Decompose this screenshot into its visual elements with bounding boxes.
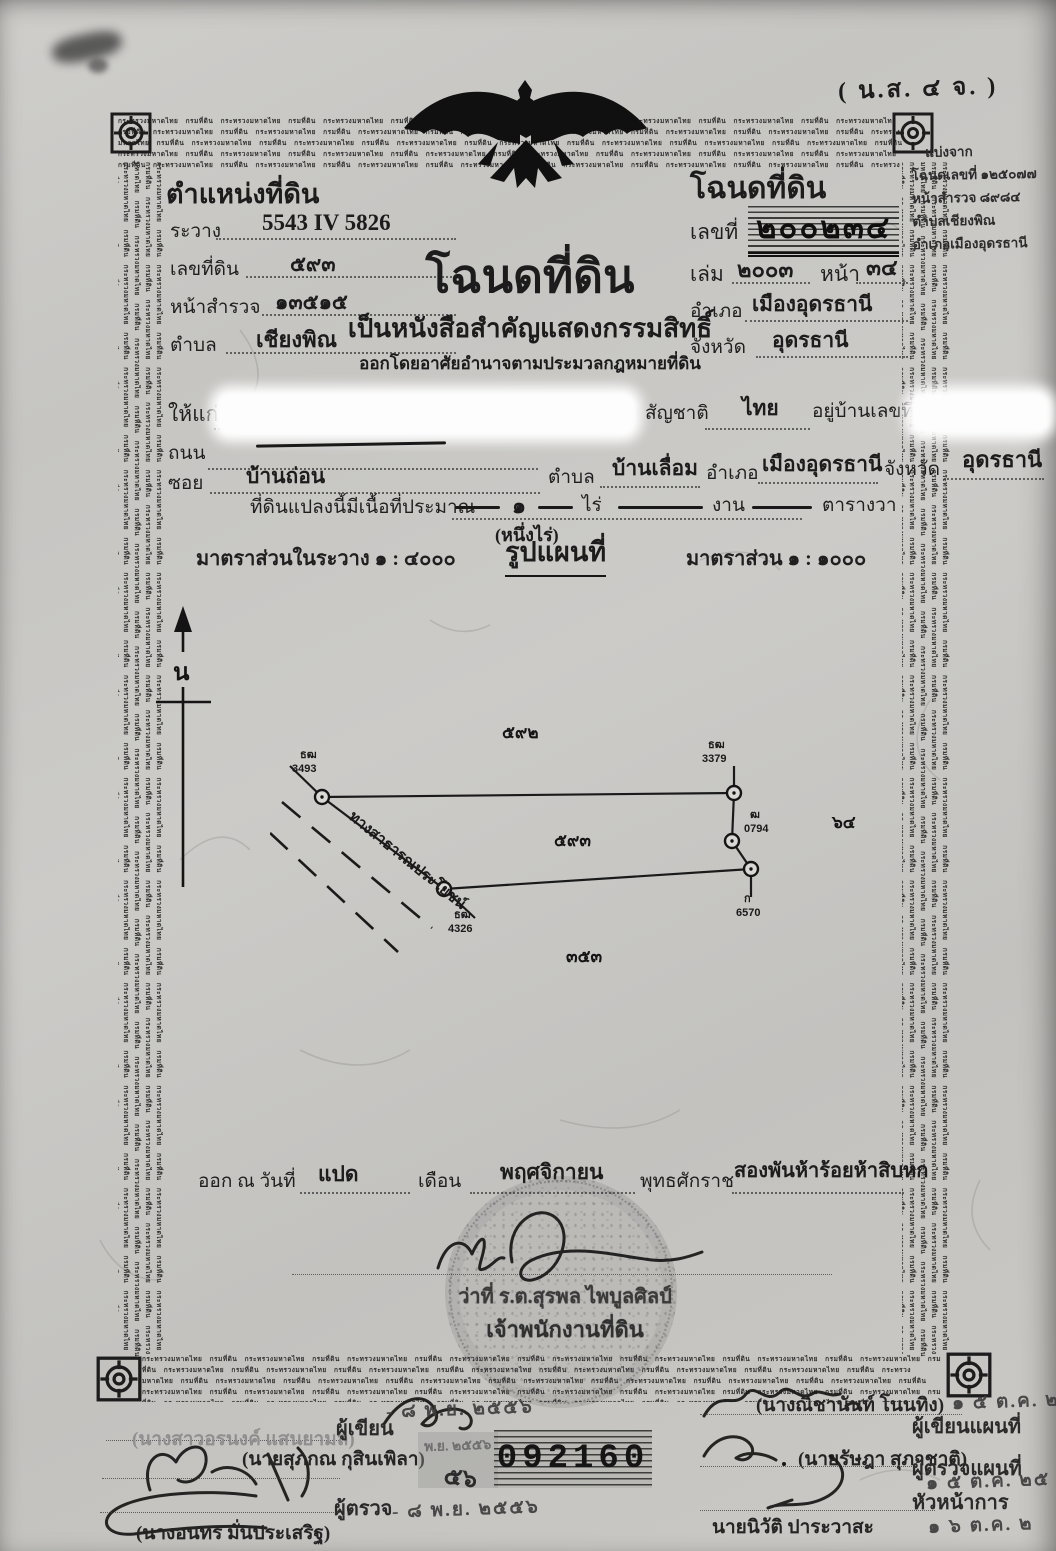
owner-province-value: อุดรธานี [962, 442, 1042, 477]
marker-rm-number: 0794 [744, 823, 769, 835]
issue-day: แปด [318, 1158, 359, 1191]
field-line [300, 1192, 410, 1194]
margin-split-note: แบ่งจาก โฉนดเลขที่ ๑๒๕๐๗๗ หน้าสำรวจ ๘๙๘๔… [911, 139, 1038, 256]
page-value: ๓๔ [866, 250, 898, 285]
head-signature-flourish [758, 1450, 868, 1512]
field-line [732, 1192, 904, 1194]
nationality-value: ไทย [742, 392, 779, 425]
address-label: อยู่บ้านเลขที่ [812, 396, 914, 426]
area-rai-label: ไร่ [582, 490, 602, 520]
cadastral-map: ธฒ 3493 ธฒ 3379 ฒ 0794 ก 6570 ธฒ 4326 ๕๙… [270, 690, 880, 990]
signature-line [700, 1510, 935, 1511]
north-indicator: น [148, 602, 228, 902]
adjacent-parcel-bottom: ๓๕๓ [566, 947, 602, 966]
nationality-label: สัญชาติ [645, 398, 709, 428]
owner-amphoe-value: เมืองอุดรธานี [762, 448, 882, 481]
marker-tr-prefix: ธฒ [708, 739, 725, 751]
road-label: ทางสาธารณประโยชน์ [345, 806, 471, 913]
margin-note-line: อำเภอเมืองอุดรธานี [913, 231, 1038, 256]
checker-role: ผู้ตรวจ [334, 1492, 392, 1524]
marker-bl-number: 4326 [448, 923, 472, 935]
garuda-emblem [398, 80, 653, 198]
redaction-address [910, 392, 1050, 434]
field-line [944, 478, 1044, 480]
owner-tambon-value: บ้านเลื่อม [612, 452, 698, 485]
adjacent-parcel-right: ๖๔ [831, 813, 856, 832]
margin-note-line: หน้าสำรวจ ๘๙๘๔ [912, 185, 1037, 210]
survey-sheet-value: 5543 IV 5826 [262, 210, 391, 236]
registrar-title: เจ้าพนักงานที่ดิน [415, 1312, 715, 1347]
head-date: ๑ ๖ ต.ค. ๒ [928, 1508, 1034, 1542]
area-wa-label: ตารางวา [822, 490, 897, 520]
map-writer-role: ผู้เขียนแผนที่ [912, 1410, 1021, 1442]
tambon-label: ตำบล [170, 330, 217, 360]
issue-prefix: ออก ณ วันที่ [198, 1166, 296, 1196]
issue-year: สองพันห้าร้อยห้าสิบหก [734, 1154, 928, 1186]
position-block-title: ตำแหน่งที่ดิน [166, 172, 319, 215]
road-label: ถนน [168, 438, 205, 468]
margin-note-line: แบ่งจาก [911, 139, 1036, 164]
margin-note-line: ตำบลเชียงพิณ [912, 208, 1037, 233]
deed-no-value: ๒๐๐๒๓๔ [748, 202, 899, 257]
owner-province-label: จังหวัด [884, 454, 940, 484]
deed-subtitle2: ออกโดยอาศัยอำนาจตามประมวลกฎหมายที่ดิน [300, 350, 760, 377]
redaction-owner-name [216, 392, 636, 436]
checker-name: (นายสุภกณ กุสินเพิลา) [242, 1444, 425, 1474]
field-line [756, 356, 908, 358]
marker-tr-number: 3379 [702, 753, 726, 765]
area-rai-value: ๑ [512, 488, 526, 523]
page-label: หน้า [820, 258, 860, 291]
survey-page-label: หน้าสำรวจ [170, 292, 260, 322]
parcel-no-label: เลขที่ดิน [170, 254, 239, 284]
owner-tambon-label: ตำบล [548, 462, 595, 492]
parcel-number: ๕๙๓ [554, 831, 591, 850]
map-section-title: รูปแผนที่ [505, 530, 606, 577]
marker-rm-prefix: ฒ [750, 809, 760, 821]
issue-era-label: พุทธศักราช [640, 1166, 734, 1196]
field-line [856, 282, 908, 284]
third-official-name: (นางอนทร มั่นประเสริฐ) [136, 1518, 330, 1548]
area-dash [455, 506, 500, 509]
given-to-label: ให้แก่ [168, 398, 218, 431]
field-line [732, 282, 810, 284]
marker-rb-prefix: ก [744, 893, 751, 905]
serial-number: 092160 [493, 1440, 653, 1478]
deed-subtitle: เป็นหนังสือสำคัญแสดงกรรมสิทธิ์ [280, 308, 780, 349]
deed-title: โฉนดที่ดิน [330, 240, 730, 313]
soi-label: ซอย [168, 468, 203, 498]
margin-note-line: โฉนดเลขที่ ๑๒๕๐๗๗ [911, 162, 1036, 187]
signature-line [102, 1478, 340, 1479]
corner-ornament-top-left [110, 112, 152, 154]
corner-ornament-bottom-left [96, 1356, 142, 1402]
head-name: นายนิวัติ ปาระวาสะ [712, 1512, 874, 1542]
serial-number-stamp: 092160 [494, 1430, 652, 1488]
registrar-name: ว่าที่ ร.ต.สุรพล ไพบูลศิลป์ [405, 1280, 725, 1312]
area-dash [618, 506, 703, 509]
province-value: อุดรธานี [772, 324, 849, 357]
land-title-deed-page: กระทรวงมหาดไทย กรมที่ดิน กระทรวงมหาดไทย … [0, 0, 1056, 1551]
issue-month-label: เดือน [418, 1166, 461, 1196]
soi-value: บ้านถ่อน [246, 460, 325, 493]
map-scale: มาตราส่วน ๑ : ๑๐๐๐ [686, 542, 866, 574]
photo-smudge [88, 58, 108, 73]
north-label: น [173, 660, 190, 686]
month-stamp-box: พ.ย. ๒๕๕๖ ๕๖ [418, 1432, 498, 1488]
survey-sheet-label: ระวาง [170, 216, 221, 246]
area-dash [752, 506, 812, 509]
area-label: ที่ดินแปลงนี้มีเนื้อที่ประมาณ [250, 492, 475, 522]
form-code: ( น.ส. ๔ จ. ) [837, 65, 999, 110]
area-dash [538, 506, 573, 509]
area-ngan-label: งาน [712, 490, 745, 520]
field-line [600, 486, 700, 488]
marker-tl-prefix: ธฒ [300, 749, 317, 761]
signature-line [100, 1512, 340, 1513]
marker-tl-number: 3493 [292, 763, 316, 775]
adjacent-parcel-top: ๕๙๒ [502, 723, 539, 742]
writer-date: - ๘ พ.ย. ๒๕๕๖ [386, 1391, 535, 1426]
field-line [758, 482, 878, 484]
marker-rb-number: 6570 [736, 907, 760, 919]
field-line [705, 428, 810, 430]
sheet-scale: มาตราส่วนในระวาง ๑ : ๔๐๐๐ [196, 542, 456, 574]
owner-amphoe-label: อำเภอ [706, 458, 759, 488]
